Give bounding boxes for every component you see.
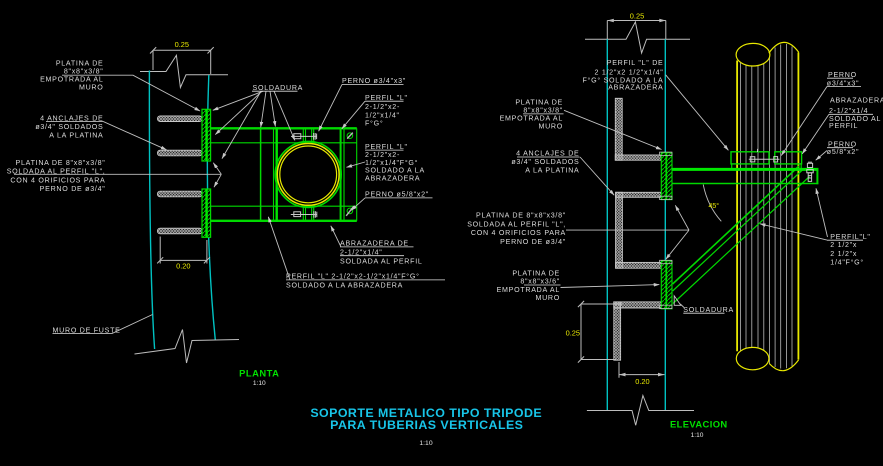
svg-text:2-1/2"x1/4: 2-1/2"x1/4 xyxy=(829,107,868,115)
svg-text:SOLDADO A LA: SOLDADO A LA xyxy=(365,167,425,175)
svg-text:8"x8"x3/8": 8"x8"x3/8" xyxy=(64,68,104,76)
svg-text:EMPOTRADA AL: EMPOTRADA AL xyxy=(40,76,103,84)
svg-text:2-1/2"x2-: 2-1/2"x2- xyxy=(365,103,400,111)
svg-text:0.25: 0.25 xyxy=(630,12,644,21)
svg-text:2-1/2"x1/4": 2-1/2"x1/4" xyxy=(340,248,383,256)
svg-text:1/2"x1/4"F°G°: 1/2"x1/4"F°G° xyxy=(365,159,418,167)
svg-text:MURO DE FUSTE: MURO DE FUSTE xyxy=(53,326,121,334)
svg-text:ELEVACION: ELEVACION xyxy=(670,418,728,429)
svg-text:F°G°: F°G° xyxy=(365,119,383,127)
svg-text:ø3/4" SOLDADOS: ø3/4" SOLDADOS xyxy=(35,123,103,131)
svg-text:0.20: 0.20 xyxy=(176,261,190,270)
svg-text:A LA PLATINA: A LA PLATINA xyxy=(525,166,579,174)
svg-text:ABRAZADERA: ABRAZADERA xyxy=(608,84,663,92)
svg-text:SOLDADA AL PERFIL "L",: SOLDADA AL PERFIL "L", xyxy=(7,168,106,176)
svg-text:2 1/2"x2 1/2"x1/4": 2 1/2"x2 1/2"x1/4" xyxy=(594,68,663,76)
svg-text:ABRAZADERA: ABRAZADERA xyxy=(365,174,420,182)
svg-text:SOLDADO A LA ABRAZADERA: SOLDADO A LA ABRAZADERA xyxy=(286,281,403,289)
svg-text:1:10: 1:10 xyxy=(691,432,704,439)
svg-text:EMPOTRADA AL: EMPOTRADA AL xyxy=(497,286,560,294)
svg-text:ABRAZADERA DE: ABRAZADERA DE xyxy=(340,240,409,248)
svg-text:PLANTA: PLANTA xyxy=(239,368,279,379)
svg-text:PERFIL "L" DE: PERFIL "L" DE xyxy=(607,59,664,67)
svg-text:4 ANCLAJES DE: 4 ANCLAJES DE xyxy=(40,115,103,123)
svg-text:PERNO: PERNO xyxy=(828,71,857,79)
svg-text:8"x8"x3/6": 8"x8"x3/6" xyxy=(520,278,560,286)
svg-text:MURO: MURO xyxy=(79,84,104,92)
svg-text:MURO: MURO xyxy=(535,294,560,302)
svg-text:SOLDADA AL PERFIL "L",: SOLDADA AL PERFIL "L", xyxy=(467,220,566,228)
svg-text:1/4"F°G°: 1/4"F°G° xyxy=(830,259,864,267)
svg-text:2 1/2"x: 2 1/2"x xyxy=(830,241,857,249)
svg-text:2 1/2"x: 2 1/2"x xyxy=(830,250,857,258)
svg-text:PERNO DE ø3/4": PERNO DE ø3/4" xyxy=(500,238,566,246)
svg-text:2-1/2"x2-: 2-1/2"x2- xyxy=(365,151,400,159)
svg-text:CON 4 ORIFICIOS PARA: CON 4 ORIFICIOS PARA xyxy=(471,229,566,237)
svg-text:45°: 45° xyxy=(709,202,720,210)
svg-text:PERFIL "L": PERFIL "L" xyxy=(365,143,408,151)
svg-text:SOLDADA AL PERFIL: SOLDADA AL PERFIL xyxy=(340,257,423,265)
svg-text:PLATINA DE 8"x8"x3/8": PLATINA DE 8"x8"x3/8" xyxy=(16,159,106,167)
svg-text:1/2"x1/4": 1/2"x1/4" xyxy=(365,112,400,120)
svg-text:PLATINA DE: PLATINA DE xyxy=(56,59,104,67)
svg-text:0.25: 0.25 xyxy=(566,328,580,337)
svg-text:ø5/8"x2": ø5/8"x2" xyxy=(827,148,859,156)
svg-text:PERNO ø5/8"x2": PERNO ø5/8"x2" xyxy=(365,191,429,199)
svg-text:PERFIL "L" 2-1/2"x2-1/2"x1/4"F: PERFIL "L" 2-1/2"x2-1/2"x1/4"F°G° xyxy=(286,273,420,281)
svg-text:PERFIL "L": PERFIL "L" xyxy=(365,94,408,102)
svg-text:PLATINA DE: PLATINA DE xyxy=(512,270,560,278)
svg-text:CON 4 ORIFICIOS PARA: CON 4 ORIFICIOS PARA xyxy=(10,176,105,184)
svg-text:PLATINA DE: PLATINA DE xyxy=(515,98,563,106)
svg-text:SOLDADURA: SOLDADURA xyxy=(683,306,734,314)
svg-text:A LA PLATINA: A LA PLATINA xyxy=(49,132,103,140)
svg-text:8"x8"x3/8": 8"x8"x3/8" xyxy=(523,107,563,115)
svg-text:PERFIL: PERFIL xyxy=(829,122,858,130)
svg-text:ABRAZADERA: ABRAZADERA xyxy=(830,96,883,104)
svg-text:SOLDADURA: SOLDADURA xyxy=(253,84,304,92)
svg-text:0.20: 0.20 xyxy=(635,377,649,386)
svg-text:0.25: 0.25 xyxy=(175,40,189,49)
svg-text:ø3/4"x3": ø3/4"x3" xyxy=(827,79,859,87)
svg-text:1:10: 1:10 xyxy=(253,380,266,387)
svg-text:4 ANCLAJES DE: 4 ANCLAJES DE xyxy=(516,150,579,158)
svg-text:PLATINA DE 8"x8"x3/8": PLATINA DE 8"x8"x3/8" xyxy=(476,212,566,220)
svg-text:MURO: MURO xyxy=(538,122,563,130)
svg-text:PARA TUBERIAS VERTICALES: PARA TUBERIAS VERTICALES xyxy=(330,418,523,432)
svg-text:ø3/4" SOLDADOS: ø3/4" SOLDADOS xyxy=(511,158,579,166)
svg-text:1:10: 1:10 xyxy=(419,440,432,447)
svg-text:PERFIL"L": PERFIL"L" xyxy=(830,233,870,241)
svg-text:PERNO DE ø3/4": PERNO DE ø3/4" xyxy=(40,185,106,193)
